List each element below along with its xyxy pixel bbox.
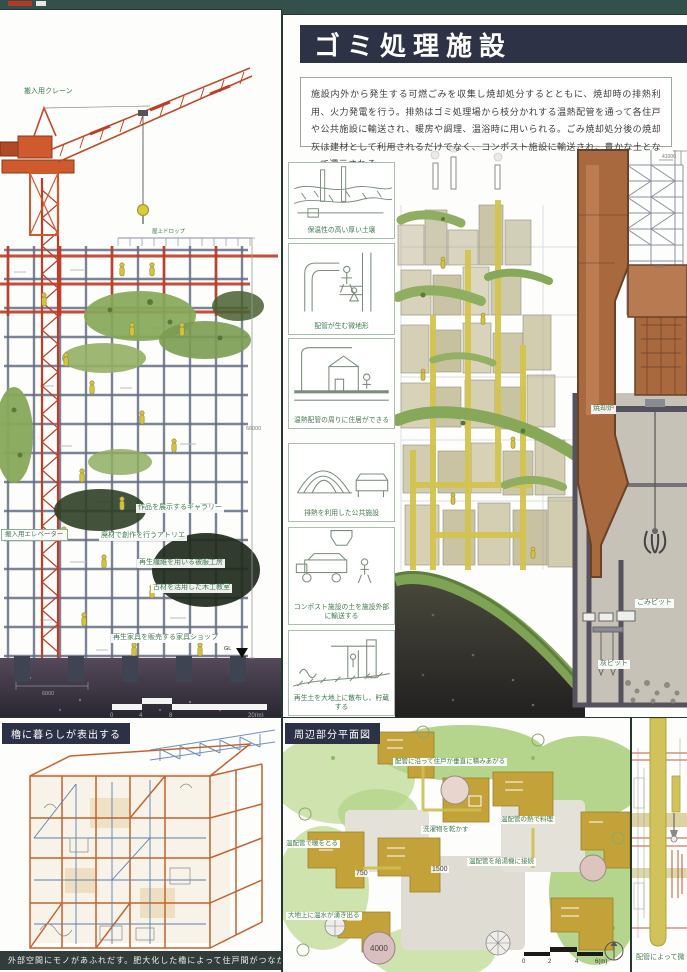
waste-facility-panel: ゴミ処理施設 施設内外から発生する可燃ごみを収集し焼却処分するとともに、焼却時の… — [283, 15, 687, 717]
woodwork-class-label: 古材を活用した木工教室 — [151, 584, 232, 593]
diagram-caption: 再生土を大地上に散布し、貯蔵する — [291, 695, 392, 713]
pipe-terrain-sketch — [289, 244, 394, 318]
scale-tick: 20(m) — [248, 713, 264, 717]
pipe-detail-panel: 配管によって微 — [632, 718, 687, 972]
ash-pit-label: 灰ピット — [598, 660, 630, 669]
plan-label-cook: 温配管の熱で料理 — [499, 816, 555, 824]
diagram-spread-soil: 再生土を大地上に散布し、貯蔵する — [288, 630, 395, 716]
waste-panel-title: ゴミ処理施設 — [300, 26, 512, 63]
waste-pit-label: ごみピット — [635, 599, 674, 608]
yagura-panel-caption: 外部空間にモノがあふれだす。肥大化した櫓によって住戸間がつながっていく。 — [0, 951, 281, 970]
scale-tick: 4 — [139, 713, 142, 717]
plan-label-laundry: 洗濯物を乾かす — [421, 826, 471, 834]
diagram-caption: 保温性の高い厚い土壌 — [291, 227, 392, 236]
furniture-shop-label: 再生家具を販売する家具ショップ — [111, 634, 220, 643]
gl-label: GL — [224, 646, 231, 652]
architecture-poster: { "poster": { "background": "#33504a", "… — [0, 0, 687, 972]
scale-tick: 8 — [169, 713, 172, 717]
crane-label: 搬入用クレーン — [22, 88, 75, 97]
registration-mark-red — [8, 1, 32, 6]
pipe-panel-caption: 配管によって微 — [634, 954, 686, 963]
field-sketch — [289, 631, 394, 695]
section-drawing-panel: 搬入用クレーン 屋上ドロップ 作品を展示するギャラリー 搬入用エレベーター 廃材… — [0, 10, 281, 717]
height-dimension: 66000 — [246, 426, 261, 432]
dim-41000: 41000 — [662, 154, 676, 160]
diagram-caption: コンポスト施設の土を施設外部に輸送する — [291, 604, 392, 622]
plan-scale-tick: 0 — [522, 959, 525, 965]
diagram-thick-soil: 保温性の高い厚い土壌 — [288, 162, 395, 239]
plan-dim-750: 750 — [355, 870, 369, 877]
width-dimension: 6000 — [42, 691, 54, 697]
dome-sketch — [289, 444, 394, 504]
yagura-panel: 櫓に暮らしが表出する 外部空間にモノがあふれだす。肥大化した櫓によって住戸間がつ… — [0, 718, 281, 972]
site-plan-panel: 周辺部分平面図 配管に沿って住戸が垂直に積みあがる 温配管の熱で料理 洗濯物を乾… — [283, 718, 630, 972]
textile-workshop-label: 再生繊維を用いる被服工房 — [137, 559, 225, 568]
building-section-illustration — [0, 10, 281, 717]
dim-1300: 1300 — [654, 264, 664, 269]
plan-label-spring: 大地上に温水が湧き出る — [286, 912, 362, 920]
elevator-label: 搬入用エレベーター — [1, 529, 68, 541]
plan-scale-tick: 6(m) — [595, 959, 607, 965]
scale-tick: 0 — [110, 713, 113, 717]
plan-label-stack: 配管に沿って住戸が垂直に積みあがる — [393, 758, 507, 766]
diagram-caption: 温熱配管の周りに住居ができる — [291, 417, 392, 426]
diagram-caption: 排熱を利用した公共施設 — [291, 510, 392, 519]
plan-dim-1500: 1500 — [431, 866, 449, 873]
gallery-label: 作品を展示するギャラリー — [136, 504, 224, 513]
plan-dim-4000: 4000 — [369, 944, 389, 953]
site-plan-title: 周辺部分平面図 — [285, 723, 380, 744]
plan-label-warm: 温配管で暖をとる — [284, 840, 340, 848]
roof-drop-label: 屋上ドロップ — [150, 229, 187, 236]
incinerator-label: 焼却炉 — [591, 405, 616, 414]
registration-mark-white — [36, 1, 46, 6]
plan-scale-tick: 4 — [575, 959, 578, 965]
yagura-perspective-illustration — [0, 718, 281, 972]
plan-label-boiler: 温配管を給湯機に接続 — [467, 858, 536, 866]
truck-sketch — [289, 528, 394, 594]
soil-sketch — [289, 163, 394, 225]
atelier-label: 廃材で創作を行うアトリエ — [99, 532, 187, 541]
diagram-compost-transport: コンポスト施設の土を施設外部に輸送する — [288, 527, 395, 625]
housing-sketch — [289, 339, 394, 411]
plan-scale-tick: 2 — [548, 959, 551, 965]
yagura-panel-title: 櫓に暮らしが表出する — [2, 723, 130, 744]
diagram-housing-around-pipe: 温熱配管の周りに住居ができる — [288, 338, 395, 429]
diagram-caption: 配管が生む微地形 — [291, 323, 392, 332]
pipe-detail-illustration — [632, 718, 687, 972]
waste-panel-description: 施設内外から発生する可燃ごみを収集し焼却処分するとともに、焼却時の排熱利用、火力… — [300, 77, 672, 147]
diagram-public-facility: 排熱を利用した公共施設 — [288, 443, 395, 522]
diagram-pipe-terrain: 配管が生む微地形 — [288, 243, 395, 335]
waste-panel-title-bar: ゴミ処理施設 — [300, 25, 687, 63]
